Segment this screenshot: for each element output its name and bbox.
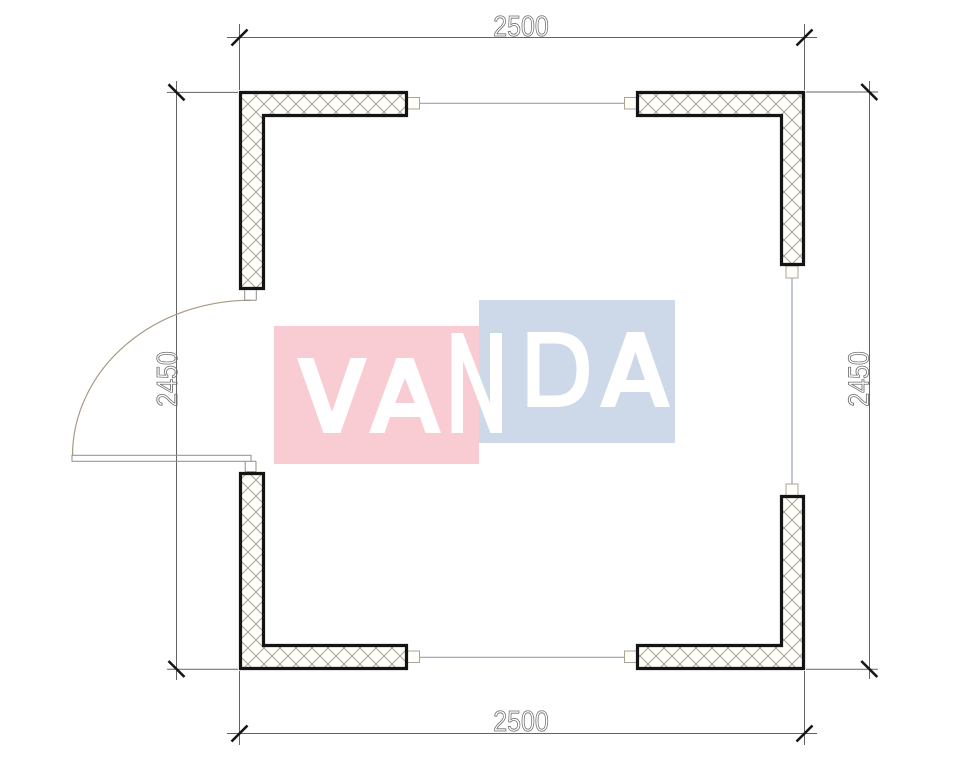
svg-text:2500: 2500 bbox=[493, 705, 548, 737]
svg-text:2500: 2500 bbox=[493, 10, 548, 42]
svg-text:2450: 2450 bbox=[151, 351, 183, 406]
svg-text:2450: 2450 bbox=[843, 351, 875, 406]
